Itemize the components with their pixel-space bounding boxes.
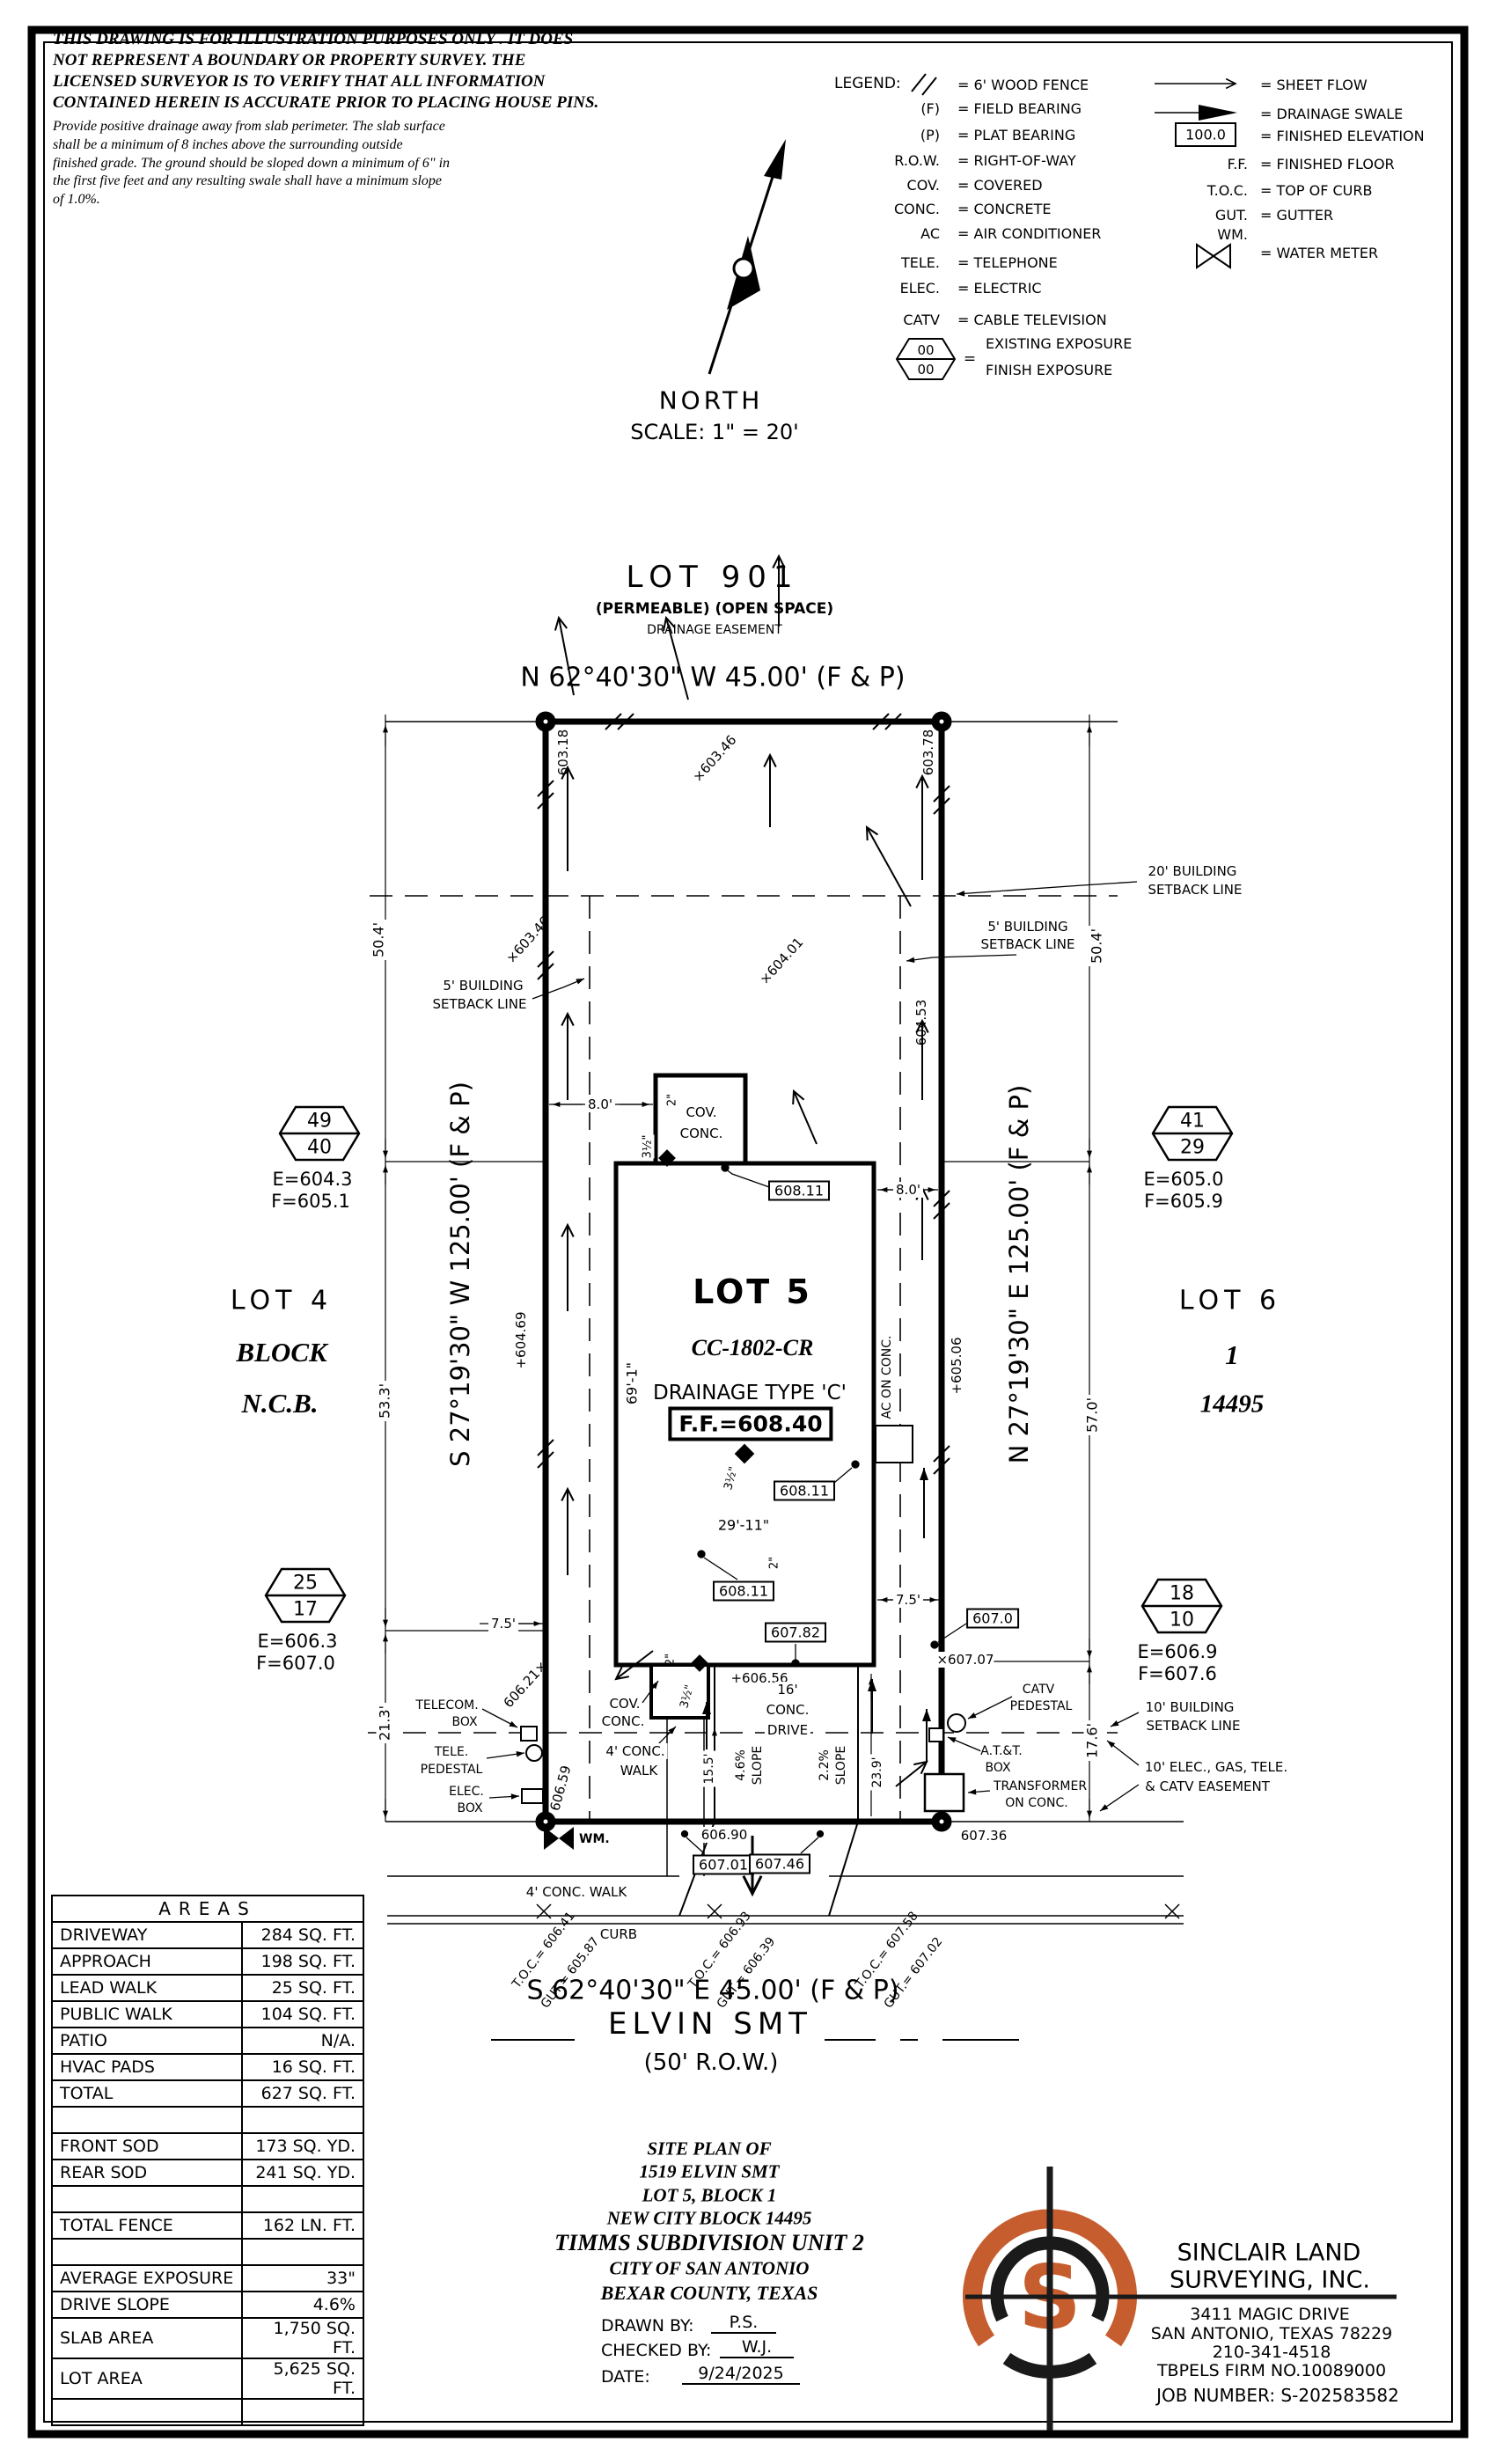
hex1-bot: 40 xyxy=(307,1137,332,1159)
legend-title: LEGEND: xyxy=(834,75,901,92)
ac-on-conc-label: AC ON CONC. xyxy=(880,1333,894,1422)
porch-cov: COV. xyxy=(686,1104,716,1120)
house-plan-no: CC-1802-CR xyxy=(689,1335,817,1361)
legend-exposure-def2: FINISH EXPOSURE xyxy=(986,362,1112,378)
dim-right-bot: 17.6' xyxy=(1084,1720,1101,1761)
legend-sym-wm: WM. xyxy=(1160,226,1248,243)
titleblock-line1: SITE PLAN OF xyxy=(647,2138,771,2160)
hex4-bot: 10 xyxy=(1170,1610,1194,1632)
legend-sym-toc: T.O.C. xyxy=(1160,182,1248,199)
area-value: 173 SQ. YD. xyxy=(242,2133,363,2160)
table-row: APPROACH198 SQ. FT. xyxy=(52,1948,363,1975)
legend-sym-f: (F) xyxy=(843,100,940,117)
spot-e-mid: +605.06 xyxy=(949,1337,964,1394)
hex1-top: 49 xyxy=(307,1111,332,1133)
spot-e-57line: ×607.07 xyxy=(936,1652,994,1668)
titleblock-line3: LOT 5, BLOCK 1 xyxy=(642,2185,777,2207)
dim-left-top: 50.4' xyxy=(370,920,387,960)
legend-sym-ff: F.F. xyxy=(1160,156,1248,172)
legend-def-gut: = GUTTER xyxy=(1260,207,1333,224)
area-label: PATIO xyxy=(52,2028,242,2054)
elev-box-5: 607.0 xyxy=(966,1609,1019,1629)
dim-porch-2in: 2" xyxy=(666,1094,679,1106)
north-arrow-icon xyxy=(709,139,786,374)
area-label xyxy=(52,2399,242,2425)
disclaimer-note: Provide positive drainage away from slab… xyxy=(53,118,451,209)
elev-box-1: 608.11 xyxy=(768,1181,830,1201)
dim-house-width: 29'-11" xyxy=(715,1517,772,1534)
titleblock-line4: NEW CITY BLOCK 14495 xyxy=(607,2208,812,2230)
transformer-label1: TRANSFORMER xyxy=(994,1779,1087,1793)
table-row: AVERAGE EXPOSURE33" xyxy=(52,2265,363,2292)
hex3-top: 25 xyxy=(293,1573,318,1595)
setback5-right-line2: SETBACK LINE xyxy=(978,936,1077,952)
dim-stoop-2in: 2" xyxy=(664,1654,678,1666)
legend-sym-p: (P) xyxy=(843,127,940,143)
legend-def-catv: = CABLE TELEVISION xyxy=(957,312,1107,328)
spot-w-mid: +604.69 xyxy=(513,1311,529,1368)
area-value xyxy=(242,2186,363,2212)
area-label: TOTAL xyxy=(52,2080,242,2107)
titleblock-line6: CITY OF SAN ANTONIO xyxy=(610,2258,810,2280)
area-value: 627 SQ. FT. xyxy=(242,2080,363,2107)
areas-title: AREAS xyxy=(52,1896,363,1922)
drawn-by-value: P.S. xyxy=(711,2313,776,2334)
setback5-right-line1: 5' BUILDING xyxy=(985,919,1070,935)
area-label: FRONT SOD xyxy=(52,2133,242,2160)
lot901-sub2: DRAINAGE EASEMENT xyxy=(647,623,782,637)
legend-sym-gut: GUT. xyxy=(1160,207,1248,224)
stoop-cov: COV. xyxy=(609,1696,640,1712)
firm-phone: 210-341-4518 xyxy=(1213,2343,1331,2362)
elev-box-3: 608.11 xyxy=(713,1581,774,1602)
table-row: LEAD WALK25 SQ. FT. xyxy=(52,1975,363,2001)
setback5-left-line2: SETBACK LINE xyxy=(429,996,529,1012)
area-value xyxy=(242,2399,363,2425)
dim-porch-35in: 3½" xyxy=(642,1135,655,1159)
lot4-block: BLOCK xyxy=(236,1337,326,1368)
spot-ne: 603.78 xyxy=(920,730,936,776)
disclaimer-line-3: LICENSED SURVEYOR IS TO VERIFY THAT ALL … xyxy=(53,72,545,92)
lot6-ncb-num: 14495 xyxy=(1200,1390,1265,1419)
spot-se: 607.36 xyxy=(961,1828,1008,1844)
legend-exposure-bottom: 00 xyxy=(917,362,934,378)
setback10-line2: SETBACK LINE xyxy=(1143,1718,1243,1734)
elev-box-2: 608.11 xyxy=(774,1481,835,1501)
area-value xyxy=(242,2239,363,2265)
area-value: 241 SQ. YD. xyxy=(242,2160,363,2186)
area-label: PUBLIC WALK xyxy=(52,2001,242,2028)
north-label: NORTH xyxy=(659,386,764,415)
dim-slope1-word: SLOPE xyxy=(751,1746,765,1786)
bearing-west: S 27°19'30" W 125.00' (F & P) xyxy=(445,1082,475,1467)
table-row: FRONT SOD173 SQ. YD. xyxy=(52,2133,363,2160)
easement-line2: & CATV EASEMENT xyxy=(1142,1778,1272,1794)
elev-box-7: 607.46 xyxy=(749,1854,810,1874)
area-value: 284 SQ. FT. xyxy=(242,1922,363,1948)
legend-fence-def: = 6' WOOD FENCE xyxy=(957,77,1089,93)
easement-line1: 10' ELEC., GAS, TELE. xyxy=(1142,1759,1290,1775)
legend-def-finelev: = FINISHED ELEVATION xyxy=(1260,128,1425,144)
lot901-name: LOT 901 xyxy=(627,560,800,595)
dim-drive-len: 23.9' xyxy=(870,1754,884,1790)
legend-sym-tele: TELE. xyxy=(843,254,940,271)
area-label: DRIVE SLOPE xyxy=(52,2292,242,2318)
table-row xyxy=(52,2399,363,2425)
drawn-by-label: DRAWN BY: xyxy=(601,2316,694,2336)
legend-def-wm: = WATER METER xyxy=(1260,245,1378,261)
table-row xyxy=(52,2239,363,2265)
legend-sym-elec: ELEC. xyxy=(843,280,940,297)
area-label: LEAD WALK xyxy=(52,1975,242,2001)
legend-sym-row: R.O.W. xyxy=(843,152,940,169)
table-row xyxy=(52,2107,363,2133)
lot6-name: LOT 6 xyxy=(1179,1286,1281,1316)
public-walk-label: 4' CONC. WALK xyxy=(524,1884,629,1900)
checked-by-label: CHECKED BY: xyxy=(601,2341,711,2360)
area-label: APPROACH xyxy=(52,1948,242,1975)
lot6-block-num: 1 xyxy=(1225,1339,1239,1371)
hex2-f: F=605.9 xyxy=(1144,1191,1223,1212)
bearing-east: N 27°19'30" E 125.00' (F & P) xyxy=(1004,1085,1034,1464)
drive-label-2: CONC. xyxy=(764,1702,812,1718)
area-value: 16 SQ. FT. xyxy=(242,2054,363,2080)
legend-sym-catv: CATV xyxy=(843,312,940,328)
hex2-e: E=605.0 xyxy=(1144,1169,1224,1190)
spot-e-upper: 604.53 xyxy=(913,1000,929,1046)
hex2-bot: 29 xyxy=(1180,1137,1205,1159)
area-label: SLAB AREA xyxy=(52,2318,242,2358)
dim-slope2-word: SLOPE xyxy=(834,1746,848,1786)
setback20-line1: 20' BUILDING xyxy=(1146,863,1240,879)
elec-box-label2: BOX xyxy=(457,1801,482,1815)
site-plan-sheet: S THIS DRAWING IS FOR ILLUSTRATION PURPO… xyxy=(0,0,1496,2464)
dim-slope1: 4.6% xyxy=(734,1749,748,1781)
hex1-e: E=604.3 xyxy=(273,1169,353,1190)
legend-def-tele: = TELEPHONE xyxy=(957,254,1058,271)
elec-box-label1: ELEC. xyxy=(449,1785,484,1799)
street-name: ELVIN SMT xyxy=(596,2006,825,2042)
area-value: 5,625 SQ. FT. xyxy=(242,2358,363,2399)
legend-def-elec: = ELECTRIC xyxy=(957,280,1042,297)
firm-addr-1: 3411 MAGIC DRIVE xyxy=(1190,2305,1350,2324)
table-row: DRIVEWAY284 SQ. FT. xyxy=(52,1922,363,1948)
legend-def-swale: = DRAINAGE SWALE xyxy=(1260,106,1403,122)
stoop-conc: CONC. xyxy=(602,1713,645,1729)
porch-conc: CONC. xyxy=(680,1126,723,1141)
legend-def-p: = PLAT BEARING xyxy=(957,127,1075,143)
dim-house-height: 69'-1" xyxy=(624,1360,641,1407)
area-label xyxy=(52,2239,242,2265)
area-value: 104 SQ. FT. xyxy=(242,2001,363,2028)
area-value: 25 SQ. FT. xyxy=(242,1975,363,2001)
legend-def-conc: = CONCRETE xyxy=(957,201,1052,217)
house-lot5: LOT 5 xyxy=(690,1272,815,1311)
dim-e-75: 7.5' xyxy=(893,1592,923,1608)
area-label: DRIVEWAY xyxy=(52,1922,242,1948)
dim-right-top: 50.4' xyxy=(1089,926,1105,966)
table-row: REAR SOD241 SQ. YD. xyxy=(52,2160,363,2186)
bearing-north: N 62°40'30" W 45.00' (F & P) xyxy=(520,663,905,693)
legend-def-cov: = COVERED xyxy=(957,177,1043,194)
date-value: 9/24/2025 xyxy=(682,2364,800,2385)
att-box-label2: BOX xyxy=(985,1761,1010,1775)
areas-table: AREAS DRIVEWAY284 SQ. FT. APPROACH198 SQ… xyxy=(51,1895,364,2426)
hex4-e: E=606.9 xyxy=(1138,1641,1218,1662)
table-row: LOT AREA5,625 SQ. FT. xyxy=(52,2358,363,2399)
area-value: 198 SQ. FT. xyxy=(242,1948,363,1975)
area-label xyxy=(52,2186,242,2212)
hex3-bot: 17 xyxy=(293,1599,318,1621)
firm-registration: TBPELS FIRM NO.10089000 xyxy=(1157,2361,1386,2380)
hex3-f: F=607.0 xyxy=(256,1653,335,1674)
area-value: 4.6% xyxy=(242,2292,363,2318)
area-value: 1,750 SQ. FT. xyxy=(242,2318,363,2358)
lot901-sub: (PERMEABLE) (OPEN SPACE) xyxy=(596,600,833,618)
table-row: TOTAL FENCE162 LN. FT. xyxy=(52,2212,363,2239)
drive-label-1: 16' xyxy=(774,1682,800,1698)
table-row xyxy=(52,2186,363,2212)
lot4-ncb: N.C.B. xyxy=(242,1388,319,1419)
firm-name-1: SINCLAIR LAND xyxy=(1177,2240,1361,2267)
hex2-top: 41 xyxy=(1180,1111,1205,1133)
table-row: TOTAL627 SQ. FT. xyxy=(52,2080,363,2107)
firm-addr-2: SAN ANTONIO, TEXAS 78229 xyxy=(1151,2324,1392,2343)
dim-e-gap: 8.0' xyxy=(893,1182,923,1198)
dim-step-2in: 2" xyxy=(768,1557,781,1569)
att-box-label1: A.T.&T. xyxy=(980,1744,1022,1758)
legend-def-row: = RIGHT-OF-WAY xyxy=(957,152,1076,169)
legend-sym-conc: CONC. xyxy=(843,201,940,217)
legend-sym-ac: AC xyxy=(843,225,940,242)
area-label: AVERAGE EXPOSURE xyxy=(52,2265,242,2292)
disclaimer-line-1: THIS DRAWING IS FOR ILLUSTRATION PURPOSE… xyxy=(53,30,573,49)
legend-def-ff: = FINISHED FLOOR xyxy=(1260,156,1395,172)
firm-job-number: JOB NUMBER: S-202583582 xyxy=(1156,2385,1399,2406)
legend-exposure-top: 00 xyxy=(917,342,934,358)
dim-leadwalk: 15.5' xyxy=(702,1750,716,1786)
hex4-top: 18 xyxy=(1170,1583,1194,1605)
hex4-f: F=607.6 xyxy=(1138,1663,1217,1684)
street-row: (50' R.O.W.) xyxy=(644,2050,779,2076)
lot4-name: LOT 4 xyxy=(231,1286,333,1316)
hex3-e: E=606.3 xyxy=(258,1631,338,1652)
legend-exposure-eq: = xyxy=(964,350,976,368)
spot-s-mid: 606.90 xyxy=(701,1827,748,1843)
spot-nw: 603.18 xyxy=(555,730,571,776)
checked-by-value: W.J. xyxy=(720,2337,794,2358)
tele-pedestal-label1: TELE. xyxy=(435,1745,469,1759)
dim-left-bot: 21.3' xyxy=(377,1703,393,1743)
area-label: LOT AREA xyxy=(52,2358,242,2399)
setback5-left-line1: 5' BUILDING xyxy=(440,978,525,994)
legend-def-toc: = TOP OF CURB xyxy=(1260,182,1372,199)
telecom-box-label2: BOX xyxy=(451,1715,477,1729)
area-value: 33" xyxy=(242,2265,363,2292)
legend-sym-cov: COV. xyxy=(843,177,940,194)
area-label xyxy=(52,2107,242,2133)
titleblock-line7: BEXAR COUNTY, TEXAS xyxy=(601,2282,818,2305)
transformer-label2: ON CONC. xyxy=(1005,1796,1067,1810)
legend-def-f: = FIELD BEARING xyxy=(957,100,1082,117)
wm-label: WM. xyxy=(579,1832,610,1846)
elev-box-4: 607.82 xyxy=(765,1623,826,1643)
leadwalk-label-2: WALK xyxy=(618,1763,660,1778)
table-row: PUBLIC WALK104 SQ. FT. xyxy=(52,2001,363,2028)
disclaimer-line-4: CONTAINED HEREIN IS ACCURATE PRIOR TO PL… xyxy=(53,93,598,113)
area-label: TOTAL FENCE xyxy=(52,2212,242,2239)
leadwalk-label-1: 4' CONC. xyxy=(603,1743,667,1759)
curb-label: CURB xyxy=(600,1926,637,1942)
legend-exposure-def1: EXISTING EXPOSURE xyxy=(986,335,1132,352)
hex1-f: F=605.1 xyxy=(271,1191,350,1212)
legend-def-ac: = AIR CONDITIONER xyxy=(957,225,1101,242)
area-value: 162 LN. FT. xyxy=(242,2212,363,2239)
table-row: PATION/A. xyxy=(52,2028,363,2054)
dim-slope2: 2.2% xyxy=(818,1749,832,1781)
titleblock-line2: 1519 ELVIN SMT xyxy=(639,2161,779,2183)
table-row: DRIVE SLOPE4.6% xyxy=(52,2292,363,2318)
titleblock-line5: TIMMS SUBDIVISION UNIT 2 xyxy=(554,2230,864,2256)
house-drainage-type: DRAINAGE TYPE 'C' xyxy=(650,1382,849,1404)
elev-box-6: 607.01 xyxy=(693,1855,754,1875)
setback10-line1: 10' BUILDING xyxy=(1143,1699,1237,1715)
disclaimer-line-2: NOT REPRESENT A BOUNDARY OR PROPERTY SUR… xyxy=(53,51,525,70)
area-value xyxy=(242,2107,363,2133)
dim-w-75: 7.5' xyxy=(488,1616,518,1632)
dim-right-mid: 57.0' xyxy=(1084,1395,1101,1435)
drive-label-3: DRIVE xyxy=(765,1722,810,1738)
legend-def-sheetflow: = SHEET FLOW xyxy=(1260,77,1368,93)
area-label: HVAC PADS xyxy=(52,2054,242,2080)
setback20-line2: SETBACK LINE xyxy=(1145,882,1244,898)
area-value: N/A. xyxy=(242,2028,363,2054)
dim-left-mid: 53.3' xyxy=(377,1381,393,1421)
scale-label: SCALE: 1" = 20' xyxy=(630,420,798,444)
catv-pedestal-label1: CATV xyxy=(1023,1683,1054,1697)
dim-w-gap: 8.0' xyxy=(585,1096,615,1112)
date-label: DATE: xyxy=(601,2367,650,2387)
firm-name-2: SURVEYING, INC. xyxy=(1170,2267,1370,2294)
house-ff: F.F.=608.40 xyxy=(668,1407,832,1441)
area-label: REAR SOD xyxy=(52,2160,242,2186)
legend-sym-finelev: 100.0 xyxy=(1185,127,1226,143)
catv-pedestal-label2: PEDESTAL xyxy=(1010,1699,1073,1713)
bearing-south: S 62°40'30" E 45.00' (F & P) xyxy=(526,1976,898,2006)
table-row: SLAB AREA1,750 SQ. FT. xyxy=(52,2318,363,2358)
telecom-box-label1: TELECOM. xyxy=(415,1698,478,1712)
tele-pedestal-label2: PEDESTAL xyxy=(421,1763,483,1777)
table-row: HVAC PADS16 SQ. FT. xyxy=(52,2054,363,2080)
